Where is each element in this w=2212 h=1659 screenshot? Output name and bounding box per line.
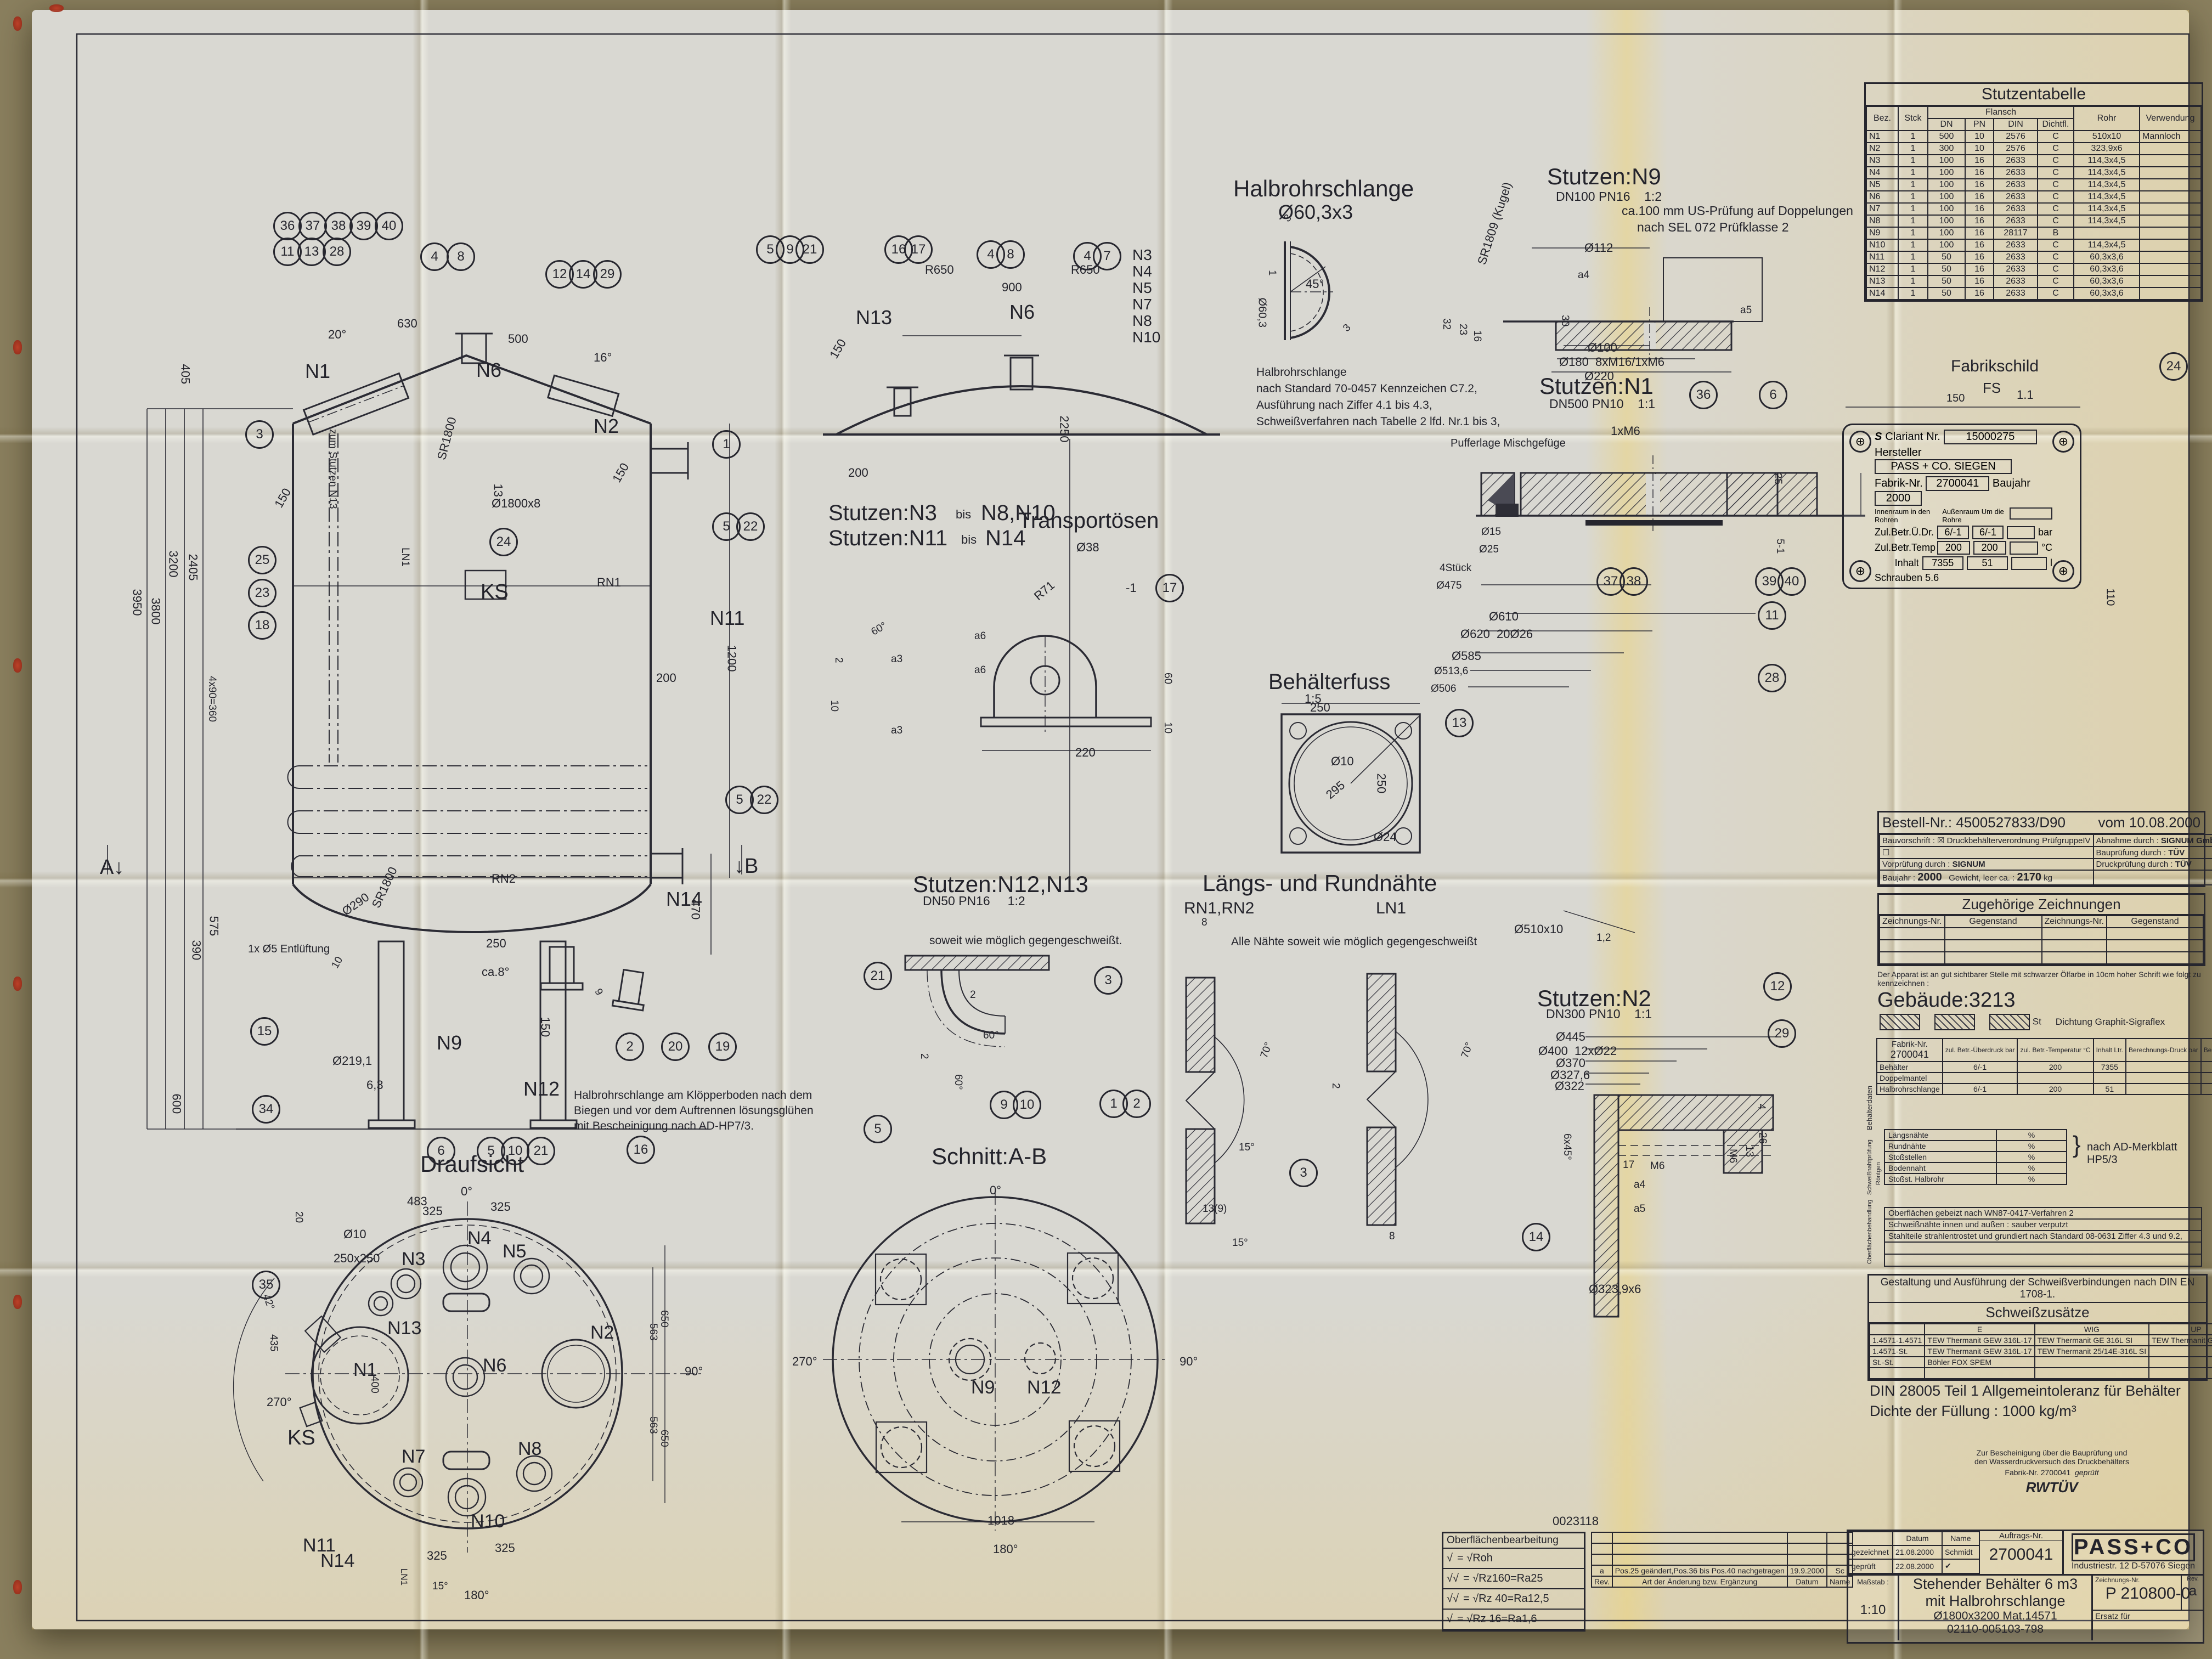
dim-label: N7	[402, 1447, 425, 1467]
nameplate-fabrikschild: ⊕ ⊕ ⊕ ⊕ S Clariant Nr. 15000275 Herstell…	[1842, 424, 2081, 589]
weld-test-row: Rundnähte %	[1884, 1140, 2067, 1152]
dim-label: Ø60,3	[1256, 298, 1268, 328]
surface-line: Stahlteile strahlentrostet und grundiert…	[1885, 1231, 2201, 1243]
dim-label: DN50 PN16 1:2	[923, 894, 1025, 907]
dim-label: M6	[1650, 1161, 1664, 1172]
balloon-callout: 18	[248, 611, 276, 640]
dim-label: N9	[437, 1032, 462, 1053]
dim-label: 250	[486, 937, 506, 950]
dim-label: KS	[481, 582, 509, 603]
dim-label: 270°	[792, 1355, 817, 1368]
dim-label: Ø15	[1481, 527, 1501, 538]
dim-label: Stutzen:N12,N13	[913, 872, 1088, 896]
nameplate-row: Zul.Betr.Temp 200 200 °C	[1875, 541, 2052, 555]
vessel-data-side-label: Behälterdaten	[1865, 1086, 1874, 1130]
balloon-callout: 34	[252, 1095, 280, 1124]
table-row: N131 5016 2633C 60,3x3,6	[1866, 275, 2201, 287]
nameplate-row: Zul.Betr.Ü.Dr. 6/-1 6/-1 bar	[1875, 526, 2052, 539]
dim-label: 45°	[1306, 278, 1324, 290]
dim-label: 13	[492, 484, 504, 497]
balloon-callout: 29	[593, 260, 622, 289]
balloon-callout: 17	[1155, 574, 1184, 602]
dim-label: 435	[268, 1334, 279, 1352]
surface-line-empty	[1885, 1243, 2201, 1255]
dim-label: Ø323,9x6	[1589, 1283, 1641, 1295]
fabrik-value: 2700041	[1926, 476, 1989, 491]
dim-label: a4	[1578, 270, 1589, 281]
dim-label: 5-1	[1774, 539, 1785, 554]
dim-label: Schweißverfahren nach Tabelle 2 lfd. Nr.…	[1256, 416, 1500, 428]
dim-label: 90°	[685, 1365, 703, 1378]
dim-label: 270°	[267, 1396, 292, 1408]
tuev-stamp: Zur Bescheinigung über die Bauprüfung un…	[1953, 1448, 2151, 1496]
dim-label: 400	[369, 1376, 380, 1393]
stamp-geprueft: geprüft	[2075, 1468, 2099, 1477]
weld-test-row: Stoßstellen %	[1884, 1151, 2067, 1163]
baujahr-label: Baujahr	[1993, 477, 2030, 489]
weld-filler-title: Schweißzusätze	[1869, 1303, 2206, 1323]
checkbox-empty-icon: ☐	[1882, 848, 1889, 857]
dim-label: Ø585	[1452, 650, 1481, 662]
dim-label: 90°	[1180, 1355, 1198, 1368]
dim-label: Ø112	[1584, 241, 1613, 254]
dim-label: 180°	[464, 1589, 489, 1601]
dim-label: 4	[1756, 1104, 1767, 1110]
balloon-callout: 5	[864, 1115, 892, 1143]
bestell-row: Bestell-Nr.: 4500527833/D90 vom 10.08.20…	[1879, 812, 2204, 834]
dim-label: Schnitt:A-B	[932, 1144, 1047, 1169]
table-row: N111 5016 2633C 60,3x3,6	[1866, 251, 2201, 263]
dim-label: 575	[207, 916, 220, 936]
dim-label: Ausführung nach Ziffer 4.1 bis 4.3,	[1256, 399, 1432, 411]
dim-label: 0°	[461, 1185, 472, 1198]
dim-label: 563	[647, 1323, 658, 1341]
marking-note: Der Apparat ist an gut sichtbarer Stelle…	[1877, 970, 2207, 988]
dim-label: Ø25	[1479, 544, 1499, 555]
related-drawings-table: Zugehörige Zeichnungen Zeichnungs-Nr. Ge…	[1877, 893, 2205, 966]
order-number-label: Auftrags-Nr.	[1980, 1531, 2062, 1541]
surface-treatment-block: Oberflächenbehandlung Oberflächen gebeiz…	[1867, 1207, 2204, 1267]
schrauben-label: Schrauben	[1875, 572, 1922, 583]
dim-label: 405	[179, 364, 191, 385]
dim-label: 325	[495, 1542, 515, 1554]
dim-label: N11	[710, 608, 744, 629]
dim-label: Ø370	[1556, 1057, 1585, 1069]
dim-label: -1	[1126, 582, 1137, 594]
table-row: N31 10016 2633C 114,3x4,5	[1866, 155, 2201, 167]
balloon-callout: 36	[273, 212, 302, 240]
nameplate-header: S Clariant Nr. 15000275	[1875, 430, 2052, 444]
table-row: 1.4571-1.4571TEW Thermanit GEW 316L-17TE…	[1870, 1335, 2212, 1346]
roughness-symbol-icon: √√	[1447, 1593, 1459, 1605]
dim-label: 200	[848, 466, 868, 479]
hersteller-label: Hersteller	[1875, 447, 1922, 459]
balloon-callout: 8	[996, 240, 1025, 269]
balloon-callout: 15	[250, 1017, 279, 1046]
dim-label: Stutzen:N9	[1547, 165, 1661, 189]
dim-label: Ø219,1	[332, 1054, 372, 1067]
scale-label: Maßstab :	[1848, 1578, 1898, 1586]
order-number: 2700041	[1980, 1545, 2062, 1564]
dim-label: 1018	[988, 1514, 1014, 1527]
dim-label: Ø24	[1374, 831, 1397, 843]
weld-test-row: Längsnähte %	[1884, 1129, 2067, 1141]
dim-label: Pufferlage Mischgefüge	[1451, 438, 1566, 449]
balloon-callout: 22	[736, 512, 765, 541]
weld-test-side-label: Schweißnahtprüfung	[1866, 1139, 1873, 1195]
dim-label: N3	[402, 1250, 425, 1269]
dim-label: 3950	[131, 589, 143, 616]
balloon-callout: 40	[375, 212, 403, 240]
table-row: N41 10016 2633C 114,3x4,5	[1866, 167, 2201, 179]
dim-label: N14	[320, 1551, 354, 1571]
nozzle-table-head: Bez. Stck Flansch Rohr Verwendung DN PN …	[1866, 106, 2201, 131]
dim-label: N7	[1132, 296, 1152, 312]
rev-value: a	[2182, 1582, 2204, 1599]
dim-label: Alle Nähte soweit wie möglich gegengesch…	[1231, 936, 1477, 948]
vom-date: 10.08.2000	[2129, 814, 2200, 831]
balloon-callout: 24	[489, 528, 518, 556]
surface-line: Schweißnähte innen und außen : sauber ve…	[1885, 1220, 2201, 1231]
dim-label: Halbrohrschlange	[1233, 177, 1414, 201]
dim-label: 3800	[149, 598, 162, 625]
dim-label: KS	[287, 1427, 315, 1449]
table-row: N81 10016 2633C 114,3x4,5	[1866, 215, 2201, 227]
gewicht-value: 2170	[2017, 871, 2041, 883]
dim-label: Ø322	[1555, 1080, 1584, 1092]
dim-label: 650	[658, 1310, 669, 1328]
balloon-callout: 28	[1758, 664, 1786, 692]
gewicht-label: Gewicht, leer ca. :	[1949, 873, 2015, 883]
table-row: N51 10016 2633C 114,3x4,5	[1866, 179, 2201, 191]
surface-line-empty	[1885, 1255, 2201, 1266]
dim-label: 60°	[952, 1074, 963, 1090]
dim-label: 150	[539, 1017, 551, 1037]
nameplate-col-headers: Innenraum in den Rohren Außenraum Um die…	[1875, 507, 2052, 524]
rwtuev-logo: RWTÜV	[1953, 1479, 2151, 1496]
baujahr-label: Baujahr :	[1882, 873, 1915, 883]
balloon-callout: 19	[708, 1032, 737, 1061]
material-hatch-swatch	[1880, 1014, 1920, 1030]
surface-finish-row: √ = √Roh	[1443, 1549, 1584, 1569]
dim-label: ↓B	[734, 856, 758, 878]
dim-label: 60	[1162, 673, 1173, 684]
order-info-block: Bestell-Nr.: 4500527833/D90 vom 10.08.20…	[1877, 811, 2205, 887]
material-legend: St Dichtung Graphit-Sigraflex	[1880, 1014, 2203, 1030]
dim-label: nach SEL 072 Prüfklasse 2	[1637, 221, 1789, 234]
dim-label: Halbrohrschlange am Klöpperboden nach de…	[574, 1090, 812, 1102]
table-row: Behälter6/-1200 7355 9,19,1 850	[1877, 1062, 2212, 1073]
dim-label: 110	[2104, 589, 2116, 606]
vorpruefung-value: SIGNUM	[1953, 860, 1985, 869]
nozzle-table: Stutzentabelle Bez. Stck Flansch Rohr Ve…	[1864, 82, 2203, 302]
bestell-number: 4500527833/D90	[1956, 814, 2066, 831]
druckpruefung-value: TÜV	[2175, 860, 2192, 869]
surface-finish-row: √ = √Rz 16=Ra1,6	[1443, 1610, 1584, 1630]
dim-label: 325	[422, 1205, 443, 1217]
balloon-callout: 10	[1013, 1091, 1041, 1119]
dim-label: DN100 PN16 1:2	[1556, 190, 1662, 203]
material-hatch-swatch	[1934, 1014, 1975, 1030]
baujahr-value: 2000	[1875, 491, 1922, 506]
dim-label: a4	[1634, 1180, 1645, 1190]
dim-label: 325	[427, 1549, 447, 1562]
table-row: N91 10016 28117B	[1866, 227, 2201, 239]
dim-label: LN1	[1376, 900, 1406, 917]
weld-design-note: Gestaltung und Ausführung der Schweißver…	[1869, 1276, 2206, 1303]
dim-label: nach Standard 70-0457 Kennzeichen C7.2,	[1256, 383, 1477, 395]
dim-label: Stutzen:N3	[828, 501, 937, 524]
balloon-callout: 17	[904, 235, 933, 264]
balloon-callout: 8	[447, 242, 475, 271]
fabrik-label: Fabrik-Nr.	[1875, 477, 1923, 489]
dim-label: RN1	[597, 576, 621, 589]
table-row: N101 10016 2633C 114,3x4,5	[1866, 239, 2201, 251]
balloon-callout: 29	[1768, 1019, 1796, 1048]
dim-label: 150	[1946, 393, 1965, 404]
baupruefung-label: Bauprüfung durch :	[2096, 848, 2166, 857]
dim-label: Ø506	[1431, 684, 1456, 695]
dim-label: Ø513,6	[1434, 666, 1468, 677]
dim-label: N1	[305, 361, 330, 382]
related-drawings-title: Zugehörige Zeichnungen	[1879, 895, 2204, 915]
weld-test-note: nach AD-Merkblatt HP5/3	[2087, 1141, 2204, 1166]
nameplate-nr-label: Nr.	[1926, 431, 1940, 443]
photo-of-technical-drawing: { "sheet": {"domain_note": "Technical dr…	[0, 0, 2212, 1659]
balloon-callout: 6	[1759, 381, 1787, 409]
abnahme-value: SIGNUM GmbH	[2161, 836, 2212, 845]
dim-label: Ø510x10	[1514, 923, 1563, 935]
weld-filler-block: Gestaltung und Ausführung der Schweißver…	[1867, 1274, 2208, 1381]
dim-label: 600	[170, 1094, 183, 1114]
dim-label: 16°	[594, 351, 612, 364]
dim-label: M6	[1727, 1149, 1738, 1163]
balloon-callout: 38	[324, 212, 353, 240]
dim-label: 630	[397, 317, 417, 330]
din-line2: Dichte der Füllung : 1000 kg/m³	[1870, 1403, 2204, 1420]
dim-label: 1	[1266, 270, 1277, 276]
dim-label: N2	[594, 416, 619, 437]
rev-label: Rev.	[2182, 1576, 2204, 1582]
table-row: N71 10016 2633C 114,3x4,5	[1866, 203, 2201, 215]
baupruefung-value: TÜV	[2168, 848, 2185, 857]
drawing-title-line2: mit Halbrohrschlange	[1899, 1593, 2091, 1610]
table-row: St.-St.Böhler FOX SPEM	[1870, 1357, 2212, 1368]
bauvorschrift-label: Bauvorschrift :	[1882, 836, 1935, 845]
nameplate-row: Inhalt 7355 51 l	[1875, 556, 2052, 570]
dim-label: 250x250	[334, 1252, 380, 1265]
baujahr-value: 2000	[1917, 871, 1942, 883]
dim-label: LN1	[399, 548, 410, 567]
dim-label: 563	[647, 1417, 658, 1434]
weld-test-row: Bodennaht %	[1884, 1162, 2067, 1174]
dim-label: 10	[1162, 722, 1173, 733]
dim-label: 23	[1457, 324, 1468, 335]
dim-label: 3200	[167, 551, 179, 578]
roughness-symbol-icon: √	[1447, 1613, 1453, 1626]
balloon-callout: 12	[1763, 972, 1792, 1001]
title-block: DatumName gezeichnet21.08.2000Schmidt ge…	[1847, 1530, 2204, 1644]
brace-glyph: }	[2073, 1131, 2081, 1159]
table-row: Doppelmantel	[1877, 1073, 2212, 1084]
balloon-callout: 13	[1445, 709, 1474, 737]
dim-label: 26	[1757, 1132, 1768, 1144]
balloon-callout: 16	[627, 1136, 655, 1164]
clariant-logo-icon: S	[1875, 431, 1882, 443]
company-logo: PASS+CO	[2072, 1533, 2195, 1561]
table-row: N121 5016 2633C 60,3x3,6	[1866, 263, 2201, 275]
vom-label: vom	[2098, 814, 2125, 831]
din-line1: DIN 28005 Teil 1 Allgemeintoleranz für B…	[1870, 1383, 2204, 1400]
dim-label: 500	[508, 332, 528, 345]
dim-label: DN500 PN10 1:1	[1549, 397, 1655, 410]
dim-label: Stutzen:N1	[1539, 374, 1654, 398]
surface-finish-legend: Oberflächenbearbeitung √ = √Roh √√ = √Rz…	[1442, 1532, 1585, 1632]
balloon-callout: 22	[750, 786, 778, 814]
dim-label: N4	[467, 1229, 491, 1249]
balloon-callout: 39	[349, 212, 378, 240]
dim-label: 2250	[1058, 416, 1070, 443]
balloon-callout: 13	[297, 238, 326, 266]
weld-test-block: Schweißnahtprüfung Röntgen Längsnähte % …	[1867, 1130, 2204, 1185]
balloon-callout: 4	[420, 242, 449, 271]
balloon-callout: 3	[245, 420, 274, 449]
balloon-callout: 36	[1689, 381, 1718, 409]
dim-label: N12	[523, 1079, 560, 1099]
dim-label: N6	[1009, 302, 1035, 323]
dim-label: RN2	[492, 872, 516, 885]
dim-label: N3	[1132, 247, 1152, 263]
aussenraum-header: Außenraum Um die Rohre	[1942, 507, 2005, 524]
film-number: 0023118	[1553, 1514, 1599, 1528]
dim-label: 900	[1002, 281, 1022, 294]
innenraum-header: Innenraum in den Rohren	[1875, 507, 1938, 524]
balloon-callout: 1	[712, 430, 741, 459]
dim-label: 325	[490, 1200, 511, 1213]
dim-label: FS	[1983, 381, 2001, 396]
dim-label: zum Stutzen N13	[327, 429, 338, 509]
roughness-symbol-icon: √	[1447, 1552, 1453, 1565]
dim-label: A↓	[100, 857, 124, 879]
dim-label: N12	[1027, 1378, 1061, 1398]
dim-label: 200	[656, 672, 676, 684]
dim-label: 250	[1375, 774, 1387, 794]
balloon-callout: 2	[616, 1032, 644, 1061]
building-number: Gebäude:3213	[1877, 989, 2207, 1012]
dim-label: 1.1	[2017, 388, 2034, 401]
dim-label: Ø445	[1556, 1030, 1585, 1043]
dim-label: Ø10	[1331, 755, 1354, 768]
balloon-callout: 7	[1093, 242, 1121, 270]
company-address: Industriestr. 12 D-57076 Siegen	[2064, 1561, 2203, 1571]
surface-side-label: Oberflächenbehandlung	[1866, 1200, 1873, 1264]
dim-label: bis	[961, 533, 977, 546]
table-row: N141 5016 2633C 60,3x3,6	[1866, 287, 2201, 300]
dim-label: N8	[518, 1440, 541, 1459]
balloon-callout: 25	[248, 546, 276, 574]
dim-label: 17	[1623, 1160, 1634, 1171]
dim-label: 6x45°	[1561, 1133, 1572, 1160]
dim-label: 25	[1772, 473, 1783, 484]
dim-label: N5	[1132, 280, 1152, 296]
drawing-title-line3: Ø1800x3200 Mat.14571	[1899, 1610, 2091, 1623]
dim-label: N13	[856, 307, 892, 328]
dim-label: Fabrikschild	[1951, 358, 2039, 375]
dim-label: bis	[956, 508, 971, 521]
nameplate-data-rows: Zul.Betr.Ü.Dr. 6/-1 6/-1 bar Zul.Betr.Te…	[1875, 526, 2052, 570]
table-row: N11 50010 2576C 510x10Mannloch	[1866, 131, 2201, 143]
dim-label: 20	[293, 1211, 304, 1223]
dim-label: 13(9)	[1203, 1204, 1227, 1215]
dim-label: a5	[1740, 305, 1752, 316]
surface-finish-row: √√ = √Rz160=Ra25	[1443, 1569, 1584, 1589]
gewicht-unit: kg	[2044, 873, 2052, 883]
dim-label: 180°	[993, 1543, 1018, 1555]
dim-label: 220	[1075, 746, 1096, 759]
dim-label: 2	[1330, 1083, 1341, 1089]
table-row: 1.4571-St.TEW Thermanit GEW 316L-17TEW T…	[1870, 1346, 2212, 1357]
nameplate-fabrik-row: Fabrik-Nr. 2700041 Baujahr 2000	[1875, 476, 2052, 506]
balloon-callout: 21	[795, 235, 824, 264]
stamp-line: den Wasserdruckversuch des Druckbehälter…	[1953, 1457, 2151, 1466]
balloon-callout: 3	[1289, 1159, 1318, 1187]
dim-label: 4Stück	[1440, 563, 1471, 574]
dim-label: 2405	[187, 554, 199, 581]
nameplate-schrauben-row: Schrauben 5.6	[1875, 572, 2052, 584]
dim-label: 1xM6	[1611, 425, 1640, 437]
dim-label: N5	[503, 1242, 526, 1262]
dim-label: a5	[1634, 1204, 1645, 1215]
dim-label: 60°	[983, 1030, 999, 1041]
nameplate-hersteller-row: Hersteller PASS + CO. SIEGEN	[1875, 447, 2052, 474]
dim-label: R650	[925, 263, 954, 276]
schrauben-value: 5.6	[1925, 572, 1939, 583]
nozzle-table-title: Stutzentabelle	[1866, 84, 2202, 106]
marking-note-block: Der Apparat ist an gut sichtbarer Stelle…	[1877, 970, 2207, 1012]
dim-label: N6	[476, 360, 501, 381]
nameplate-screw-icon: ⊕	[1849, 560, 1871, 582]
balloon-callout: 37	[298, 212, 327, 240]
dim-label: Ø38	[1076, 541, 1099, 554]
dim-label: 1x Ø5 Entlüftung	[248, 944, 330, 955]
table-row: N21 30010 2576C 323,9x6	[1866, 143, 2201, 155]
balloon-callout: 3	[1094, 966, 1122, 995]
table-row: Halbrohrschlange6/-1200 51 9,1	[1877, 1084, 2212, 1094]
dim-label: 250	[1310, 701, 1330, 714]
material-hatch-swatch	[1989, 1014, 2030, 1030]
dim-label: 13	[1743, 1145, 1754, 1157]
dim-label: 2	[833, 657, 844, 663]
table-row: N61 10016 2633C 114,3x4,5	[1866, 191, 2201, 203]
dim-label: DN300 PN10 1:1	[1546, 1007, 1652, 1020]
dim-label: N10	[471, 1512, 505, 1532]
dim-label: N4	[1132, 263, 1152, 279]
nameplate-screw-icon: ⊕	[2052, 560, 2074, 582]
dim-label: 2	[918, 1053, 929, 1059]
dim-label: 4x90=360	[206, 676, 217, 722]
dim-label: Ø180 8xM16/1xM6	[1559, 356, 1664, 368]
nameplate-screw-icon: ⊕	[2052, 431, 2074, 453]
gasket-note: Dichtung Graphit-Sigraflex	[2056, 1017, 2165, 1028]
dim-label: mit Bescheinigung nach AD-HP7/3.	[574, 1120, 754, 1132]
dim-label: Ø10	[343, 1228, 366, 1240]
dim-label: 2	[970, 990, 976, 1001]
dim-label: 16	[1471, 330, 1482, 342]
dim-label: 8	[1389, 1231, 1395, 1242]
weld-test-row: Stoßst. Halbrohr %	[1884, 1173, 2067, 1185]
dim-label: 470	[689, 900, 702, 920]
dim-label: RN1,RN2	[1184, 900, 1254, 917]
